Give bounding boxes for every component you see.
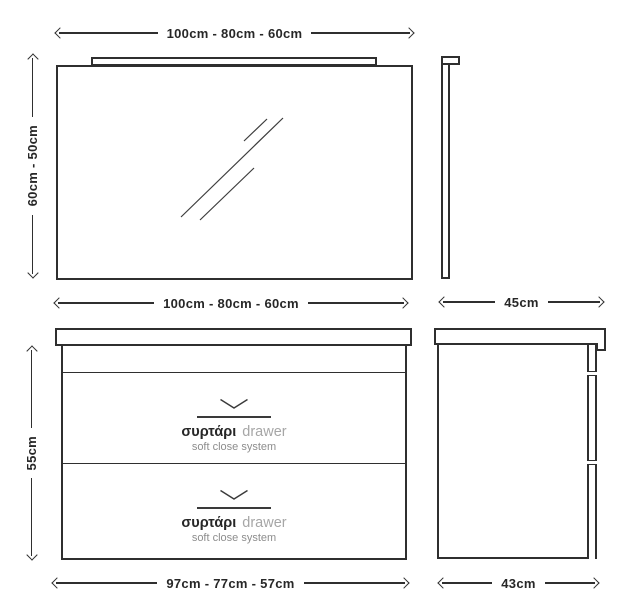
vanity-top-rail	[63, 346, 405, 373]
countertop-front-lip	[596, 343, 606, 351]
arrow-up-icon	[26, 345, 37, 356]
drawer-label-english: drawer	[242, 515, 286, 531]
drawer-2: συρτάριdrawer soft close system	[63, 464, 405, 558]
arrow-right-icon	[593, 296, 604, 307]
dimension-line	[32, 58, 33, 117]
drawer-front-strip	[587, 345, 597, 559]
dimension-mirror-side-depth: 45cm	[440, 294, 603, 310]
vanity-front-view: συρτάριdrawer soft close system συρτάριd…	[61, 344, 407, 560]
drawer-front-gap	[587, 460, 597, 465]
chevron-down-icon	[219, 489, 249, 501]
dimension-cabinet-top-width: 100cm - 80cm - 60cm	[55, 295, 407, 311]
arrow-down-icon	[27, 267, 38, 278]
dimension-label: 100cm - 80cm - 60cm	[154, 297, 308, 310]
arrow-right-icon	[588, 577, 599, 588]
drawer-label-greek: συρτάρι	[181, 515, 236, 531]
dimension-label: 45cm	[495, 296, 547, 309]
dimension-line	[311, 32, 410, 33]
arrow-left-icon	[53, 297, 64, 308]
arrow-left-icon	[438, 296, 449, 307]
arrow-down-icon	[26, 549, 37, 560]
drawer-front-gap	[587, 371, 597, 376]
drawer-label-greek: συρτάρι	[181, 424, 236, 440]
arrow-left-icon	[51, 577, 62, 588]
arrow-right-icon	[403, 27, 414, 38]
dimension-label: 55cm	[25, 428, 38, 478]
dimension-line	[58, 302, 154, 303]
mirror-reflection-lines-icon	[56, 65, 413, 280]
dimension-line	[59, 32, 158, 33]
drawer-subtitle: soft close system	[192, 533, 276, 544]
dimension-label: 100cm - 80cm - 60cm	[158, 27, 312, 40]
dimension-line	[31, 350, 32, 428]
dimension-mirror-height: 60cm - 50cm	[25, 55, 40, 277]
chevron-down-icon	[219, 398, 249, 410]
mirror-side-view	[441, 56, 450, 279]
dimension-line	[304, 582, 405, 583]
dimension-label: 60cm - 50cm	[26, 117, 39, 214]
dimension-cabinet-bottom-width: 97cm - 77cm - 57cm	[53, 575, 408, 591]
dimension-line	[56, 582, 157, 583]
dimension-line	[32, 215, 33, 274]
arrow-right-icon	[397, 297, 408, 308]
dimension-label: 97cm - 77cm - 57cm	[157, 577, 303, 590]
dimension-mirror-width: 100cm - 80cm - 60cm	[56, 25, 413, 41]
drawer-handle-line	[197, 507, 271, 509]
dimension-line	[31, 478, 32, 556]
drawer-handle-line	[197, 416, 271, 418]
mirror-side-ledge-tab	[441, 56, 460, 65]
dimension-cabinet-height: 55cm	[24, 347, 39, 559]
drawer-1: συρτάριdrawer soft close system	[63, 373, 405, 464]
arrow-left-icon	[54, 27, 65, 38]
arrow-left-icon	[437, 577, 448, 588]
drawer-subtitle: soft close system	[192, 442, 276, 453]
dimension-line	[442, 582, 492, 583]
arrow-right-icon	[398, 577, 409, 588]
dimension-cabinet-side-depth: 43cm	[439, 575, 598, 591]
drawer-label: συρτάριdrawer	[181, 425, 286, 440]
dimension-label: 43cm	[492, 577, 544, 590]
arrow-up-icon	[27, 53, 38, 64]
dimension-line	[443, 301, 495, 302]
vanity-side-view	[437, 343, 589, 559]
drawer-label: συρτάριdrawer	[181, 516, 286, 531]
furniture-dimension-diagram: 100cm - 80cm - 60cm 60cm - 50cm 45cm 100…	[0, 0, 637, 613]
dimension-line	[308, 302, 404, 303]
drawer-label-english: drawer	[242, 424, 286, 440]
